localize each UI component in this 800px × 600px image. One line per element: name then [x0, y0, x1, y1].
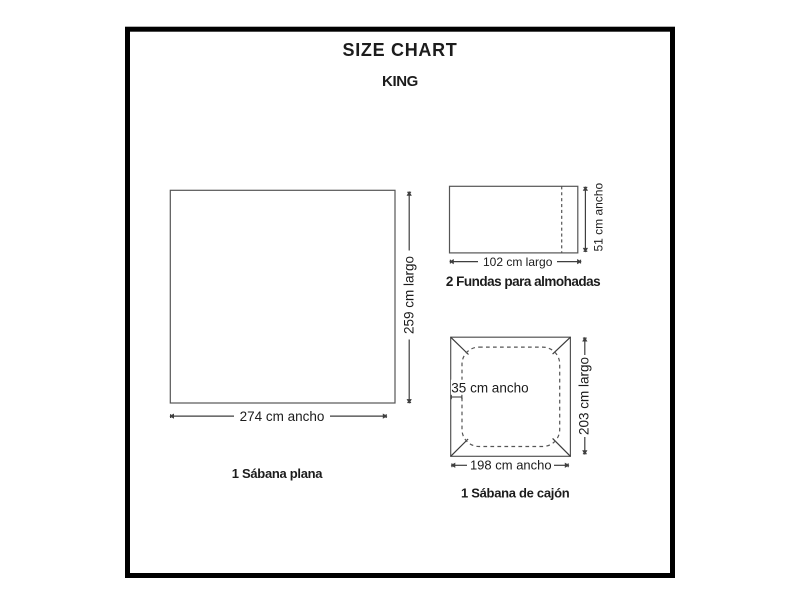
- svg-text:203 cm largo: 203 cm largo: [576, 357, 591, 435]
- svg-text:2 Fundas para almohadas: 2 Fundas para almohadas: [446, 274, 600, 289]
- svg-text:274 cm ancho: 274 cm ancho: [240, 409, 325, 424]
- svg-text:KING: KING: [382, 73, 418, 90]
- svg-text:259 cm largo: 259 cm largo: [402, 256, 417, 334]
- svg-text:51 cm ancho: 51 cm ancho: [592, 183, 606, 252]
- svg-text:1 Sábana plana: 1 Sábana plana: [232, 466, 324, 481]
- svg-text:102 cm largo: 102 cm largo: [483, 255, 553, 269]
- svg-text:35 cm ancho: 35 cm ancho: [451, 380, 528, 395]
- svg-text:198 cm ancho: 198 cm ancho: [470, 458, 552, 473]
- svg-text:SIZE CHART: SIZE CHART: [343, 40, 458, 60]
- svg-text:1 Sábana de cajón: 1 Sábana de cajón: [461, 486, 570, 501]
